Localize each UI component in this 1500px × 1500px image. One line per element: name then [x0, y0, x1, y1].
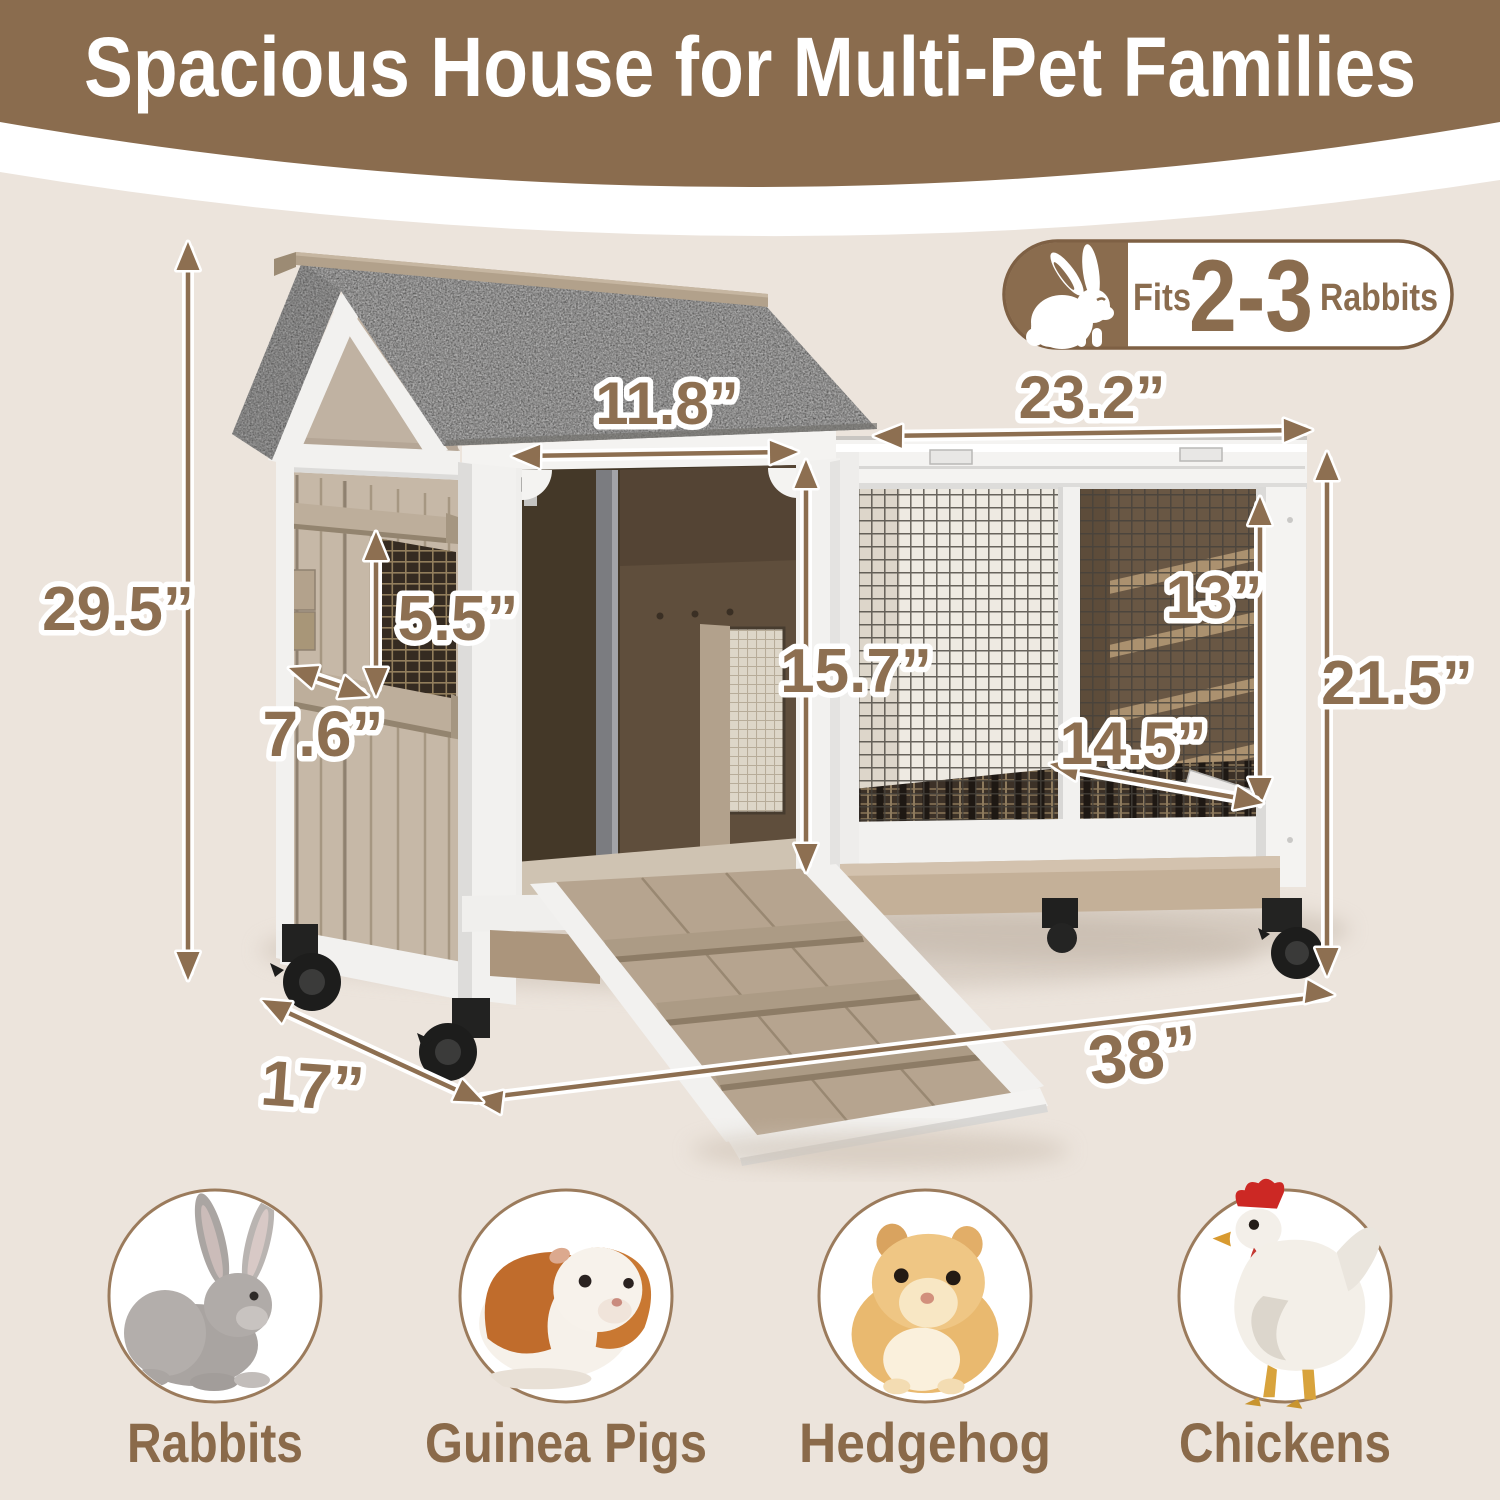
- svg-text:Fits: Fits: [1133, 277, 1191, 319]
- svg-text:13”: 13”: [1166, 564, 1263, 631]
- svg-text:29.5”: 29.5”: [42, 575, 194, 644]
- svg-text:5.5”: 5.5”: [398, 582, 519, 654]
- svg-text:Rabbits: Rabbits: [1320, 277, 1438, 319]
- svg-text:17”: 17”: [259, 1047, 367, 1126]
- svg-text:38”: 38”: [1084, 1011, 1202, 1100]
- svg-text:21.5”: 21.5”: [1321, 649, 1473, 718]
- svg-text:11.8”: 11.8”: [595, 370, 738, 437]
- svg-text:Rabbits: Rabbits: [127, 1411, 303, 1474]
- svg-text:7.6”: 7.6”: [263, 698, 384, 770]
- svg-text:Chickens: Chickens: [1179, 1411, 1391, 1474]
- svg-text:23.2”: 23.2”: [1019, 364, 1166, 431]
- svg-text:15.7”: 15.7”: [780, 637, 932, 706]
- svg-text:Hedgehog: Hedgehog: [799, 1411, 1051, 1474]
- svg-text:2-3: 2-3: [1189, 239, 1313, 353]
- svg-text:Guinea Pigs: Guinea Pigs: [425, 1411, 707, 1474]
- svg-text:Spacious House for Multi-Pet F: Spacious House for Multi-Pet Families: [84, 20, 1416, 114]
- svg-text:14.5”: 14.5”: [1060, 710, 1207, 777]
